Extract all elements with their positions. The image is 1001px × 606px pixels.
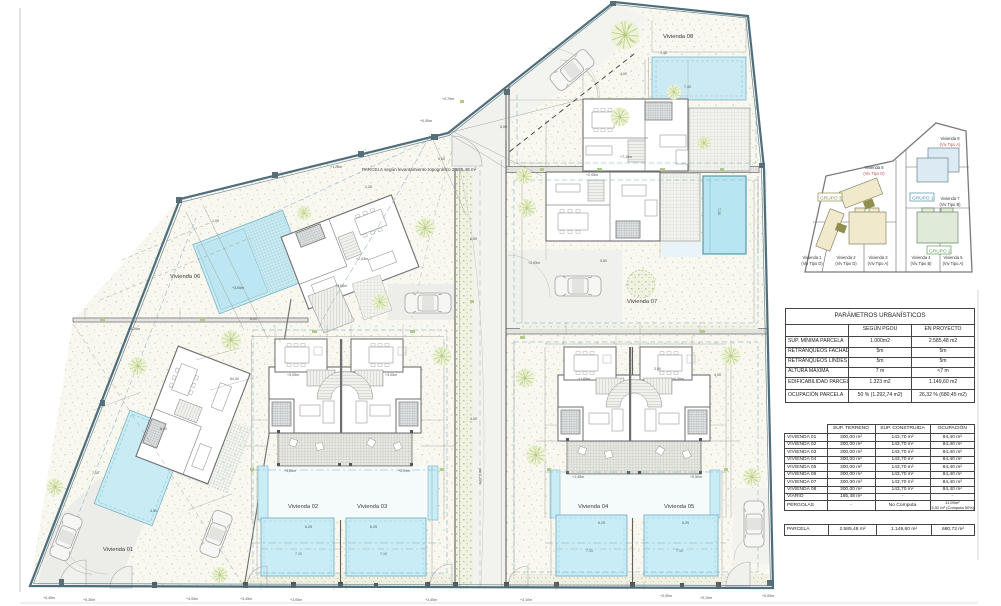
- svg-text:Vivienda 01: Vivienda 01: [103, 547, 133, 553]
- svg-text:+3,10m: +3,10m: [520, 598, 532, 602]
- svg-text:GRUPO 1: GRUPO 1: [912, 195, 934, 201]
- svg-text:1,26: 1,26: [365, 185, 372, 189]
- svg-text:+0,55m: +0,55m: [420, 119, 432, 123]
- svg-text:+1,45m: +1,45m: [572, 475, 584, 479]
- svg-text:Vivienda 8: Vivienda 8: [940, 136, 960, 141]
- svg-text:+1,26m: +1,26m: [330, 165, 342, 169]
- svg-text:64,00: 64,00: [230, 377, 239, 381]
- svg-text:5,60: 5,60: [600, 259, 607, 263]
- svg-text:+2,03m: +2,03m: [356, 257, 368, 261]
- svg-text:+3,65m: +3,65m: [335, 284, 347, 288]
- svg-text:(Viv Tipo B): (Viv Tipo B): [939, 202, 961, 207]
- svg-text:+3,05m: +3,05m: [287, 373, 299, 377]
- svg-text:4,00: 4,00: [620, 72, 627, 76]
- svg-text:+0,50m: +0,50m: [690, 475, 702, 479]
- svg-text:5,00: 5,00: [500, 125, 507, 129]
- svg-text:GRUPO 2: GRUPO 2: [929, 248, 951, 254]
- svg-text:+1,65m: +1,65m: [578, 377, 590, 381]
- svg-text:+3,65m: +3,65m: [232, 286, 244, 290]
- svg-text:Vivienda 7: Vivienda 7: [940, 196, 960, 201]
- svg-text:Vivienda 2: Vivienda 2: [836, 255, 856, 260]
- svg-text:+0,50m: +0,50m: [672, 377, 684, 381]
- svg-text:Vivienda 04: Vivienda 04: [578, 504, 609, 510]
- svg-text:7,10: 7,10: [676, 549, 683, 553]
- svg-text:+5,45m: +5,45m: [43, 596, 55, 600]
- svg-text:+3,65m: +3,65m: [284, 469, 296, 473]
- svg-text:+3,05m: +3,05m: [385, 373, 397, 377]
- svg-text:6,25: 6,25: [305, 525, 312, 529]
- svg-text:+2,05m: +2,05m: [398, 469, 410, 473]
- svg-text:7,40: 7,40: [684, 85, 691, 89]
- svg-text:Vivienda 1: Vivienda 1: [802, 255, 822, 260]
- svg-text:(Viv Tipo A): (Viv Tipo A): [868, 261, 889, 266]
- svg-text:+2,05m: +2,05m: [528, 261, 540, 265]
- svg-text:(Viv Tipo D): (Viv Tipo D): [835, 261, 857, 266]
- svg-text:+7,15m: +7,15m: [620, 155, 632, 159]
- svg-text:Vivienda 02: Vivienda 02: [288, 504, 318, 510]
- svg-text:Vivienda 4: Vivienda 4: [911, 255, 931, 260]
- svg-text:+4,05m: +4,05m: [186, 597, 198, 601]
- svg-text:7,10: 7,10: [717, 208, 721, 215]
- svg-text:6,50: 6,50: [470, 237, 477, 241]
- svg-text:Vivienda 07: Vivienda 07: [627, 299, 657, 305]
- svg-text:Vivienda 6: Vivienda 6: [864, 165, 884, 170]
- svg-text:+3,45m: +3,45m: [240, 597, 252, 601]
- svg-text:6,25: 6,25: [598, 521, 605, 525]
- svg-text:Vivienda 5: Vivienda 5: [943, 255, 963, 260]
- svg-text:4,00: 4,00: [470, 417, 477, 421]
- svg-text:6,00: 6,00: [250, 317, 257, 321]
- svg-text:1,00: 1,00: [212, 219, 219, 223]
- svg-text:+5,35m: +5,35m: [83, 598, 95, 602]
- svg-text:GRUPO 3: GRUPO 3: [820, 195, 842, 201]
- svg-text:Vivienda 05: Vivienda 05: [664, 504, 694, 510]
- svg-text:7,10: 7,10: [380, 552, 387, 556]
- svg-text:+0,00m: +0,00m: [762, 594, 774, 598]
- svg-text:4,50: 4,50: [150, 509, 157, 513]
- svg-text:(Viv Tipo D): (Viv Tipo D): [863, 171, 885, 176]
- svg-text:8,40: 8,40: [160, 427, 167, 431]
- svg-text:(Viv Tipo A): (Viv Tipo A): [943, 261, 964, 266]
- svg-text:PARCELA según levantamiento to: PARCELA según levantamiento topográfico …: [362, 167, 477, 172]
- svg-text:7,10: 7,10: [586, 549, 593, 553]
- svg-text:+0,10m: +0,10m: [700, 596, 712, 600]
- svg-text:+0,90m: +0,90m: [660, 594, 672, 598]
- svg-text:+3,45m: +3,45m: [425, 598, 437, 602]
- svg-text:Vivienda 03: Vivienda 03: [357, 504, 387, 510]
- svg-text:+1,26m: +1,26m: [128, 327, 140, 331]
- svg-text:6,25: 6,25: [370, 525, 377, 529]
- svg-text:(Viv Tipo A): (Viv Tipo A): [940, 142, 961, 147]
- svg-text:7,10: 7,10: [295, 552, 302, 556]
- svg-text:+2,05m: +2,05m: [586, 173, 598, 177]
- svg-text:Vivienda 06: Vivienda 06: [170, 274, 200, 280]
- svg-text:+3,05m: +3,05m: [290, 598, 302, 602]
- svg-text:pte 1,20%: pte 1,20%: [478, 468, 482, 485]
- svg-text:Vivienda 08: Vivienda 08: [663, 34, 693, 40]
- svg-text:7,10: 7,10: [92, 471, 99, 475]
- svg-text:3,00: 3,00: [654, 367, 661, 371]
- svg-text:(Viv Tipo B): (Viv Tipo B): [910, 261, 932, 266]
- svg-text:+0,75m: +0,75m: [442, 97, 454, 101]
- svg-text:(Viv Tipo D): (Viv Tipo D): [801, 261, 823, 266]
- svg-text:4,00: 4,00: [714, 373, 721, 377]
- svg-text:5,30: 5,30: [438, 157, 445, 161]
- svg-text:Vivienda 3: Vivienda 3: [868, 255, 888, 260]
- svg-text:1,40: 1,40: [660, 51, 667, 55]
- svg-text:6,25: 6,25: [682, 521, 689, 525]
